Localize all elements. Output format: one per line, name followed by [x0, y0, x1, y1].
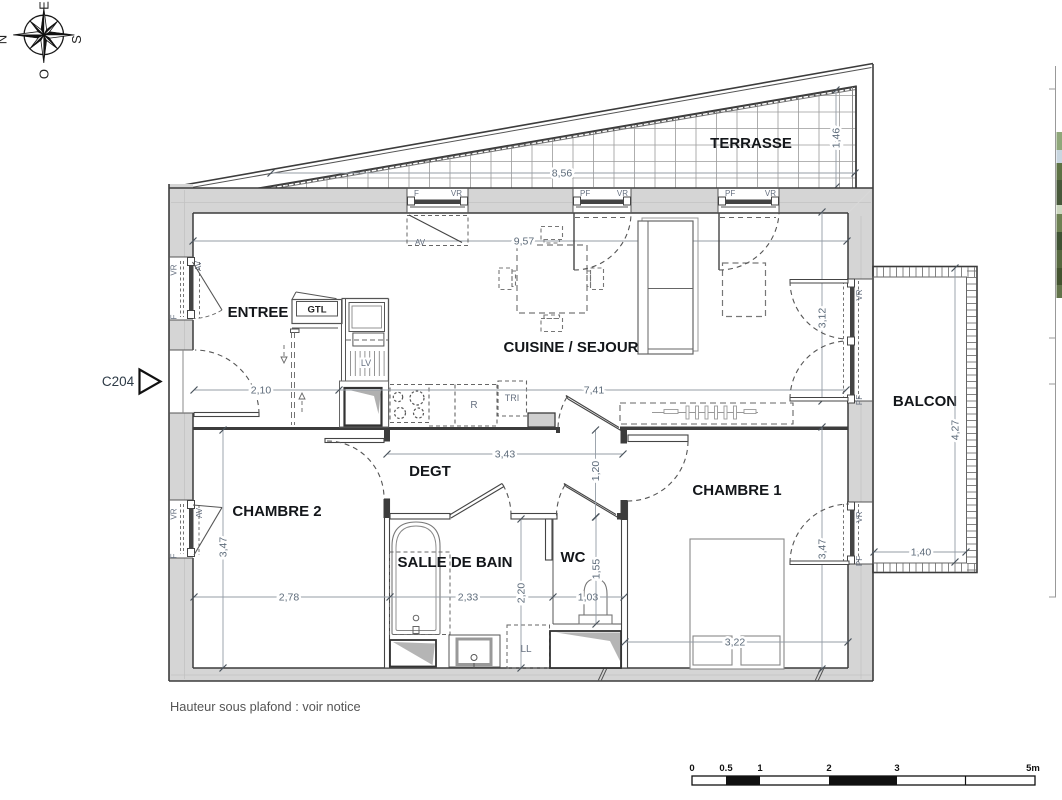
svg-text:PF: PF — [855, 556, 864, 566]
svg-text:F: F — [414, 189, 419, 198]
svg-text:VR: VR — [170, 264, 179, 275]
svg-text:F: F — [170, 553, 179, 558]
svg-text:E: E — [37, 1, 52, 10]
svg-text:3,47: 3,47 — [817, 539, 829, 560]
svg-text:2,78: 2,78 — [279, 592, 300, 604]
svg-text:2,33: 2,33 — [458, 592, 479, 604]
svg-text:4,27: 4,27 — [950, 420, 962, 441]
svg-text:S: S — [69, 35, 84, 44]
svg-text:3,47: 3,47 — [218, 537, 230, 558]
svg-text:3,12: 3,12 — [817, 308, 829, 329]
svg-text:WC: WC — [561, 549, 586, 566]
svg-text:LL: LL — [520, 644, 532, 655]
svg-text:PF: PF — [725, 189, 735, 198]
svg-text:2,10: 2,10 — [251, 385, 272, 397]
svg-text:0.5: 0.5 — [719, 763, 733, 774]
svg-text:1,03: 1,03 — [578, 592, 599, 604]
svg-text:BALCON: BALCON — [893, 393, 957, 410]
svg-text:VR: VR — [765, 189, 776, 198]
svg-text:VR: VR — [617, 189, 628, 198]
svg-text:1,46: 1,46 — [831, 128, 843, 149]
svg-text:R: R — [470, 400, 477, 411]
svg-text:0: 0 — [689, 763, 694, 774]
svg-text:DEGT: DEGT — [409, 463, 451, 480]
svg-text:9,57: 9,57 — [514, 236, 535, 248]
svg-text:CHAMBRE 2: CHAMBRE 2 — [232, 503, 321, 520]
svg-text:TRI: TRI — [505, 393, 520, 403]
svg-text:PF: PF — [580, 189, 590, 198]
svg-text:5m: 5m — [1026, 763, 1040, 774]
svg-text:1,20: 1,20 — [590, 461, 602, 482]
svg-text:VR: VR — [855, 511, 864, 522]
svg-text:SALLE DE BAIN: SALLE DE BAIN — [397, 554, 512, 571]
svg-text:PF: PF — [855, 395, 864, 405]
svg-text:C204: C204 — [102, 374, 135, 389]
svg-text:GTL: GTL — [308, 305, 327, 316]
svg-text:CUISINE / SEJOUR: CUISINE / SEJOUR — [503, 339, 638, 356]
svg-text:N: N — [0, 35, 10, 44]
svg-text:TERRASSE: TERRASSE — [710, 135, 792, 152]
svg-text:ENTREE: ENTREE — [228, 304, 289, 321]
svg-text:AV: AV — [195, 507, 204, 518]
svg-text:LV: LV — [361, 358, 371, 368]
svg-text:1: 1 — [757, 763, 763, 774]
svg-text:VR: VR — [170, 508, 179, 519]
svg-text:F: F — [170, 314, 179, 319]
svg-text:2: 2 — [826, 763, 831, 774]
svg-text:3,22: 3,22 — [725, 637, 746, 649]
svg-text:AV: AV — [415, 238, 426, 247]
svg-text:O: O — [37, 69, 52, 79]
svg-text:3: 3 — [894, 763, 899, 774]
svg-text:VR: VR — [855, 289, 864, 300]
svg-text:1,55: 1,55 — [591, 559, 603, 580]
svg-text:CHAMBRE 1: CHAMBRE 1 — [692, 482, 781, 499]
svg-text:8,56: 8,56 — [552, 168, 573, 180]
svg-text:3,43: 3,43 — [495, 449, 516, 461]
svg-text:1,40: 1,40 — [911, 547, 932, 559]
svg-text:7,41: 7,41 — [584, 385, 605, 397]
svg-text:Hauteur sous plafond : voir no: Hauteur sous plafond : voir notice — [170, 699, 361, 714]
svg-text:2,20: 2,20 — [516, 583, 528, 604]
svg-text:VR: VR — [451, 189, 462, 198]
